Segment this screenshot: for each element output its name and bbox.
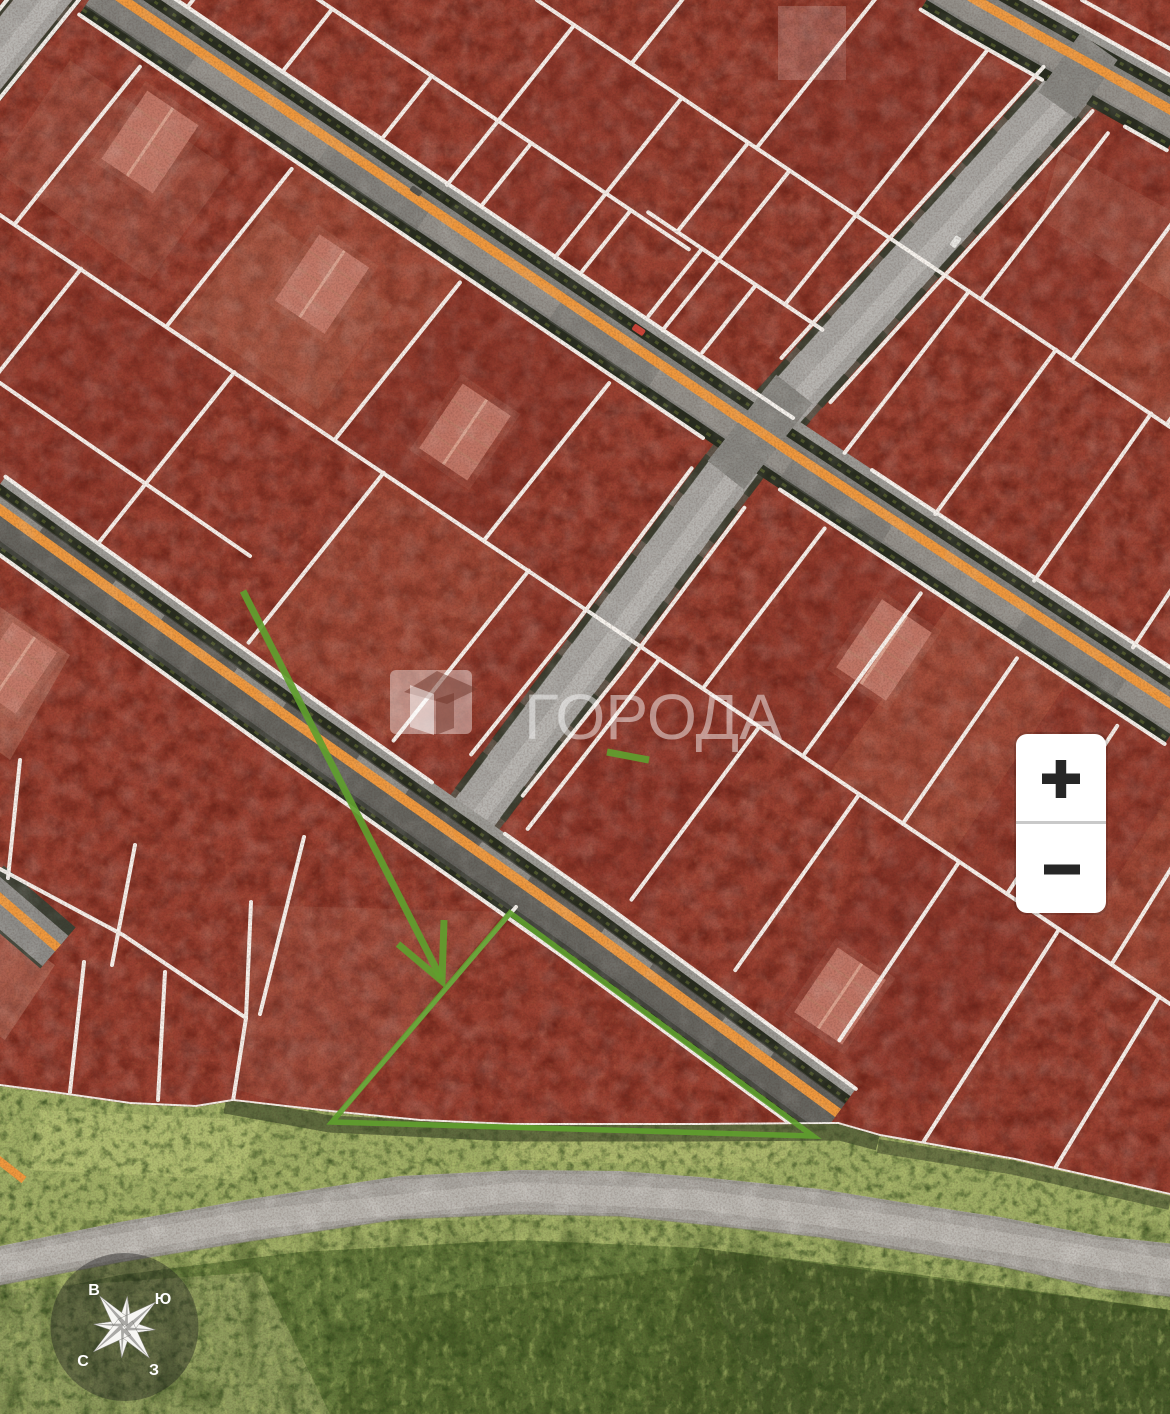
svg-text:Ю: Ю (155, 1291, 172, 1308)
svg-text:З: З (149, 1362, 159, 1379)
svg-text:В: В (88, 1282, 100, 1299)
svg-text:С: С (77, 1353, 89, 1370)
svg-text:ГОРОДА: ГОРОДА (524, 681, 782, 753)
